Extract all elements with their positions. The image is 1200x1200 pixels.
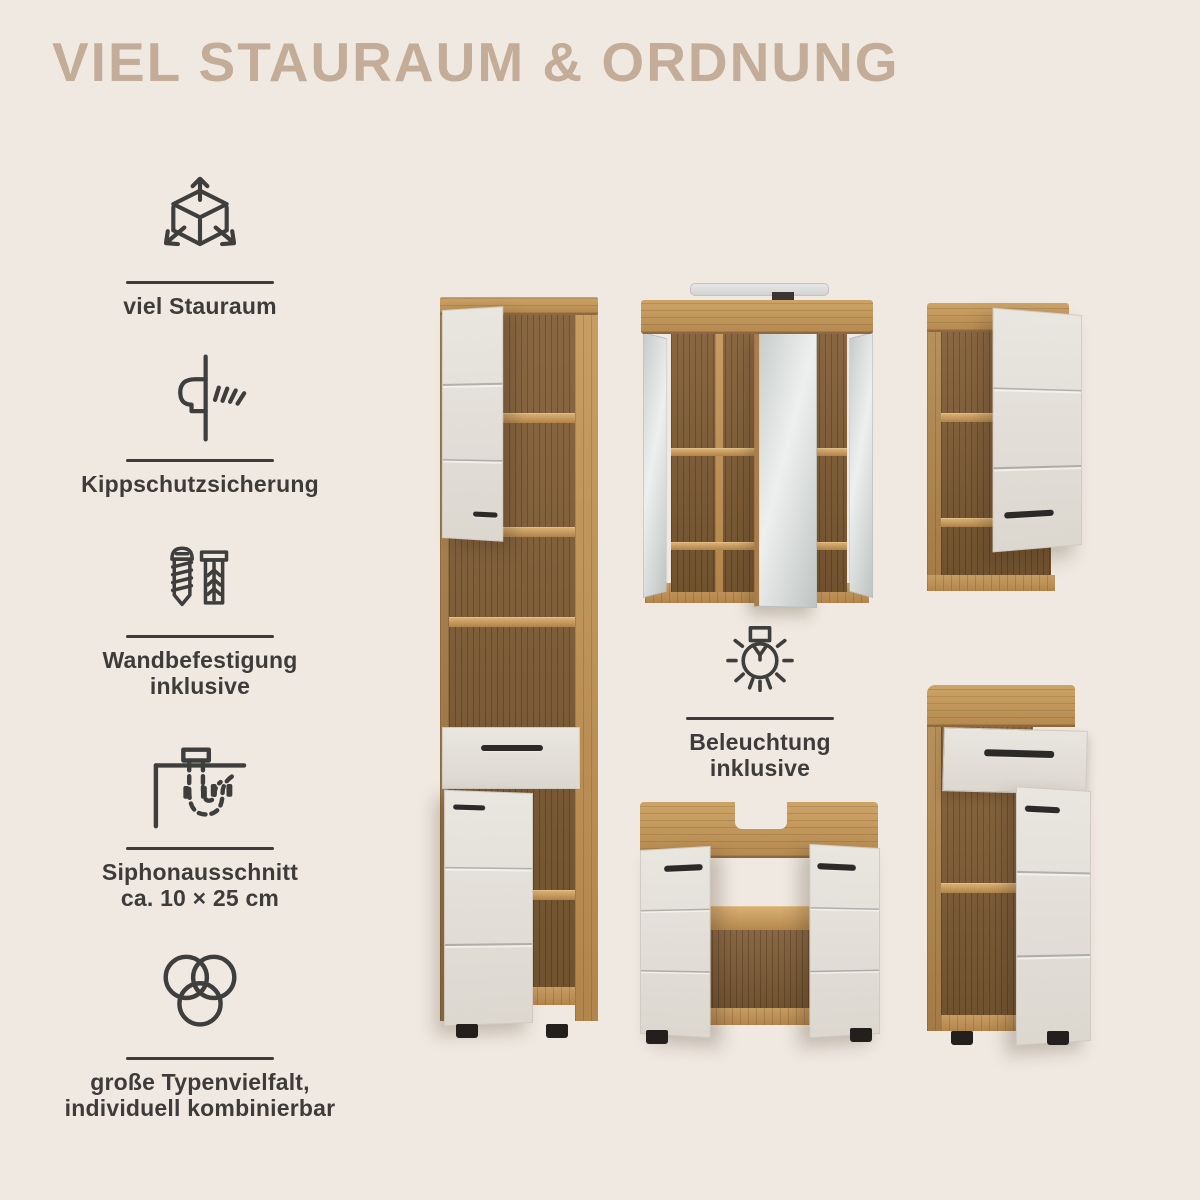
feature-label: Kippschutzsicherung xyxy=(81,472,319,498)
cabinet-top-panel xyxy=(927,685,1075,727)
feature-divider xyxy=(126,1057,274,1060)
floor-cabinet-image xyxy=(927,685,1087,1045)
shelf xyxy=(671,448,759,456)
drawer-handle xyxy=(984,749,1054,758)
tall-cabinet-image xyxy=(440,297,598,1042)
feature-viel-stauraum: viel Stauraum xyxy=(50,176,350,320)
siphon-pipe-icon xyxy=(144,736,256,834)
open-door xyxy=(444,790,533,1027)
open-door xyxy=(993,308,1082,553)
mirror-door-open xyxy=(754,330,817,608)
feature-label-line2: ca. 10 × 25 cm xyxy=(102,886,298,912)
cabinet-foot xyxy=(646,1030,668,1044)
lightbulb-icon xyxy=(720,622,800,704)
feature-kippschutz: Kippschutzsicherung xyxy=(50,350,350,498)
led-light-bar xyxy=(690,283,829,296)
cabinet-foot xyxy=(951,1031,973,1045)
shelf xyxy=(671,542,759,550)
cabinet-top-panel xyxy=(641,300,873,334)
drawer-handle xyxy=(481,745,543,751)
feature-label: Siphonausschnitt ca. 10 × 25 cm xyxy=(102,860,298,912)
feature-divider xyxy=(126,281,274,284)
feature-label: viel Stauraum xyxy=(123,294,276,320)
product-feature-infographic: VIEL STAURAUM & ORDNUNG viel Stauraum Ki… xyxy=(0,0,1200,1200)
cube-dimensions-icon xyxy=(153,176,247,268)
feature-typenvielfalt: große Typenvielfalt, individuell kombini… xyxy=(50,946,350,1122)
feature-divider xyxy=(126,459,274,462)
callout-label: Beleuchtung inklusive xyxy=(689,730,830,782)
callout-label-line2: inklusive xyxy=(689,756,830,782)
feature-siphonausschnitt: Siphonausschnitt ca. 10 × 25 cm xyxy=(50,736,350,912)
cabinet-foot xyxy=(850,1028,872,1042)
cabinet-side-panel xyxy=(575,311,598,1021)
door-handle xyxy=(473,511,497,517)
cabinet-foot xyxy=(1047,1031,1069,1045)
door-handle xyxy=(664,864,702,872)
cabinet-foot xyxy=(456,1024,478,1038)
feature-wandbefestigung: Wandbefestigung inklusive xyxy=(50,540,350,700)
cabinet-interior xyxy=(706,930,812,1010)
interior-shelf xyxy=(700,906,818,933)
feature-label-line1: Siphonausschnitt xyxy=(102,860,298,886)
feature-label-line1: große Typenvielfalt, xyxy=(65,1070,336,1096)
cabinet-interior xyxy=(671,330,759,592)
page-title: VIEL STAURAUM & ORDNUNG xyxy=(52,30,900,94)
overlapping-circles-icon xyxy=(150,946,250,1044)
cabinet-side-panel xyxy=(927,328,941,590)
feature-label-line1: Kippschutzsicherung xyxy=(81,472,319,498)
door-handle xyxy=(453,804,485,810)
open-door xyxy=(809,844,880,1038)
feature-label-line2: individuell kombinierbar xyxy=(65,1096,336,1122)
feature-divider xyxy=(126,847,274,850)
door-handle xyxy=(817,863,855,871)
anti-tip-anchor-icon xyxy=(153,350,247,446)
cabinet-foot xyxy=(546,1024,568,1038)
mirror-cabinet-image xyxy=(641,283,873,613)
feature-label: Wandbefestigung inklusive xyxy=(102,648,297,700)
open-door xyxy=(640,846,711,1038)
mirror-door-open xyxy=(849,332,873,598)
feature-label-line2: inklusive xyxy=(102,674,297,700)
siphon-cutout xyxy=(735,802,787,829)
cabinet-side-panel xyxy=(927,721,941,1031)
drawer-front xyxy=(442,727,580,789)
feature-label-line1: Wandbefestigung xyxy=(102,648,297,674)
sink-cabinet-image xyxy=(640,798,878,1045)
drawer-front xyxy=(942,727,1088,795)
door-handle xyxy=(1005,509,1054,518)
cabinet-bottom-panel xyxy=(927,575,1055,591)
open-door xyxy=(442,306,503,542)
feature-label: große Typenvielfalt, individuell kombini… xyxy=(65,1070,336,1122)
callout-beleuchtung: Beleuchtung inklusive xyxy=(655,622,865,782)
open-door xyxy=(1016,786,1091,1045)
feature-label-line1: viel Stauraum xyxy=(123,294,276,320)
interior-divider xyxy=(715,330,723,592)
screw-dowel-icon xyxy=(161,540,239,622)
wall-cabinet-image xyxy=(927,303,1082,603)
mirror-door-open xyxy=(643,332,667,598)
cabinet-bottom-panel xyxy=(700,1008,818,1025)
feature-divider xyxy=(126,635,274,638)
callout-label-line1: Beleuchtung xyxy=(689,730,830,756)
callout-divider xyxy=(686,717,834,720)
shelf xyxy=(449,617,575,627)
door-handle xyxy=(1024,806,1059,814)
